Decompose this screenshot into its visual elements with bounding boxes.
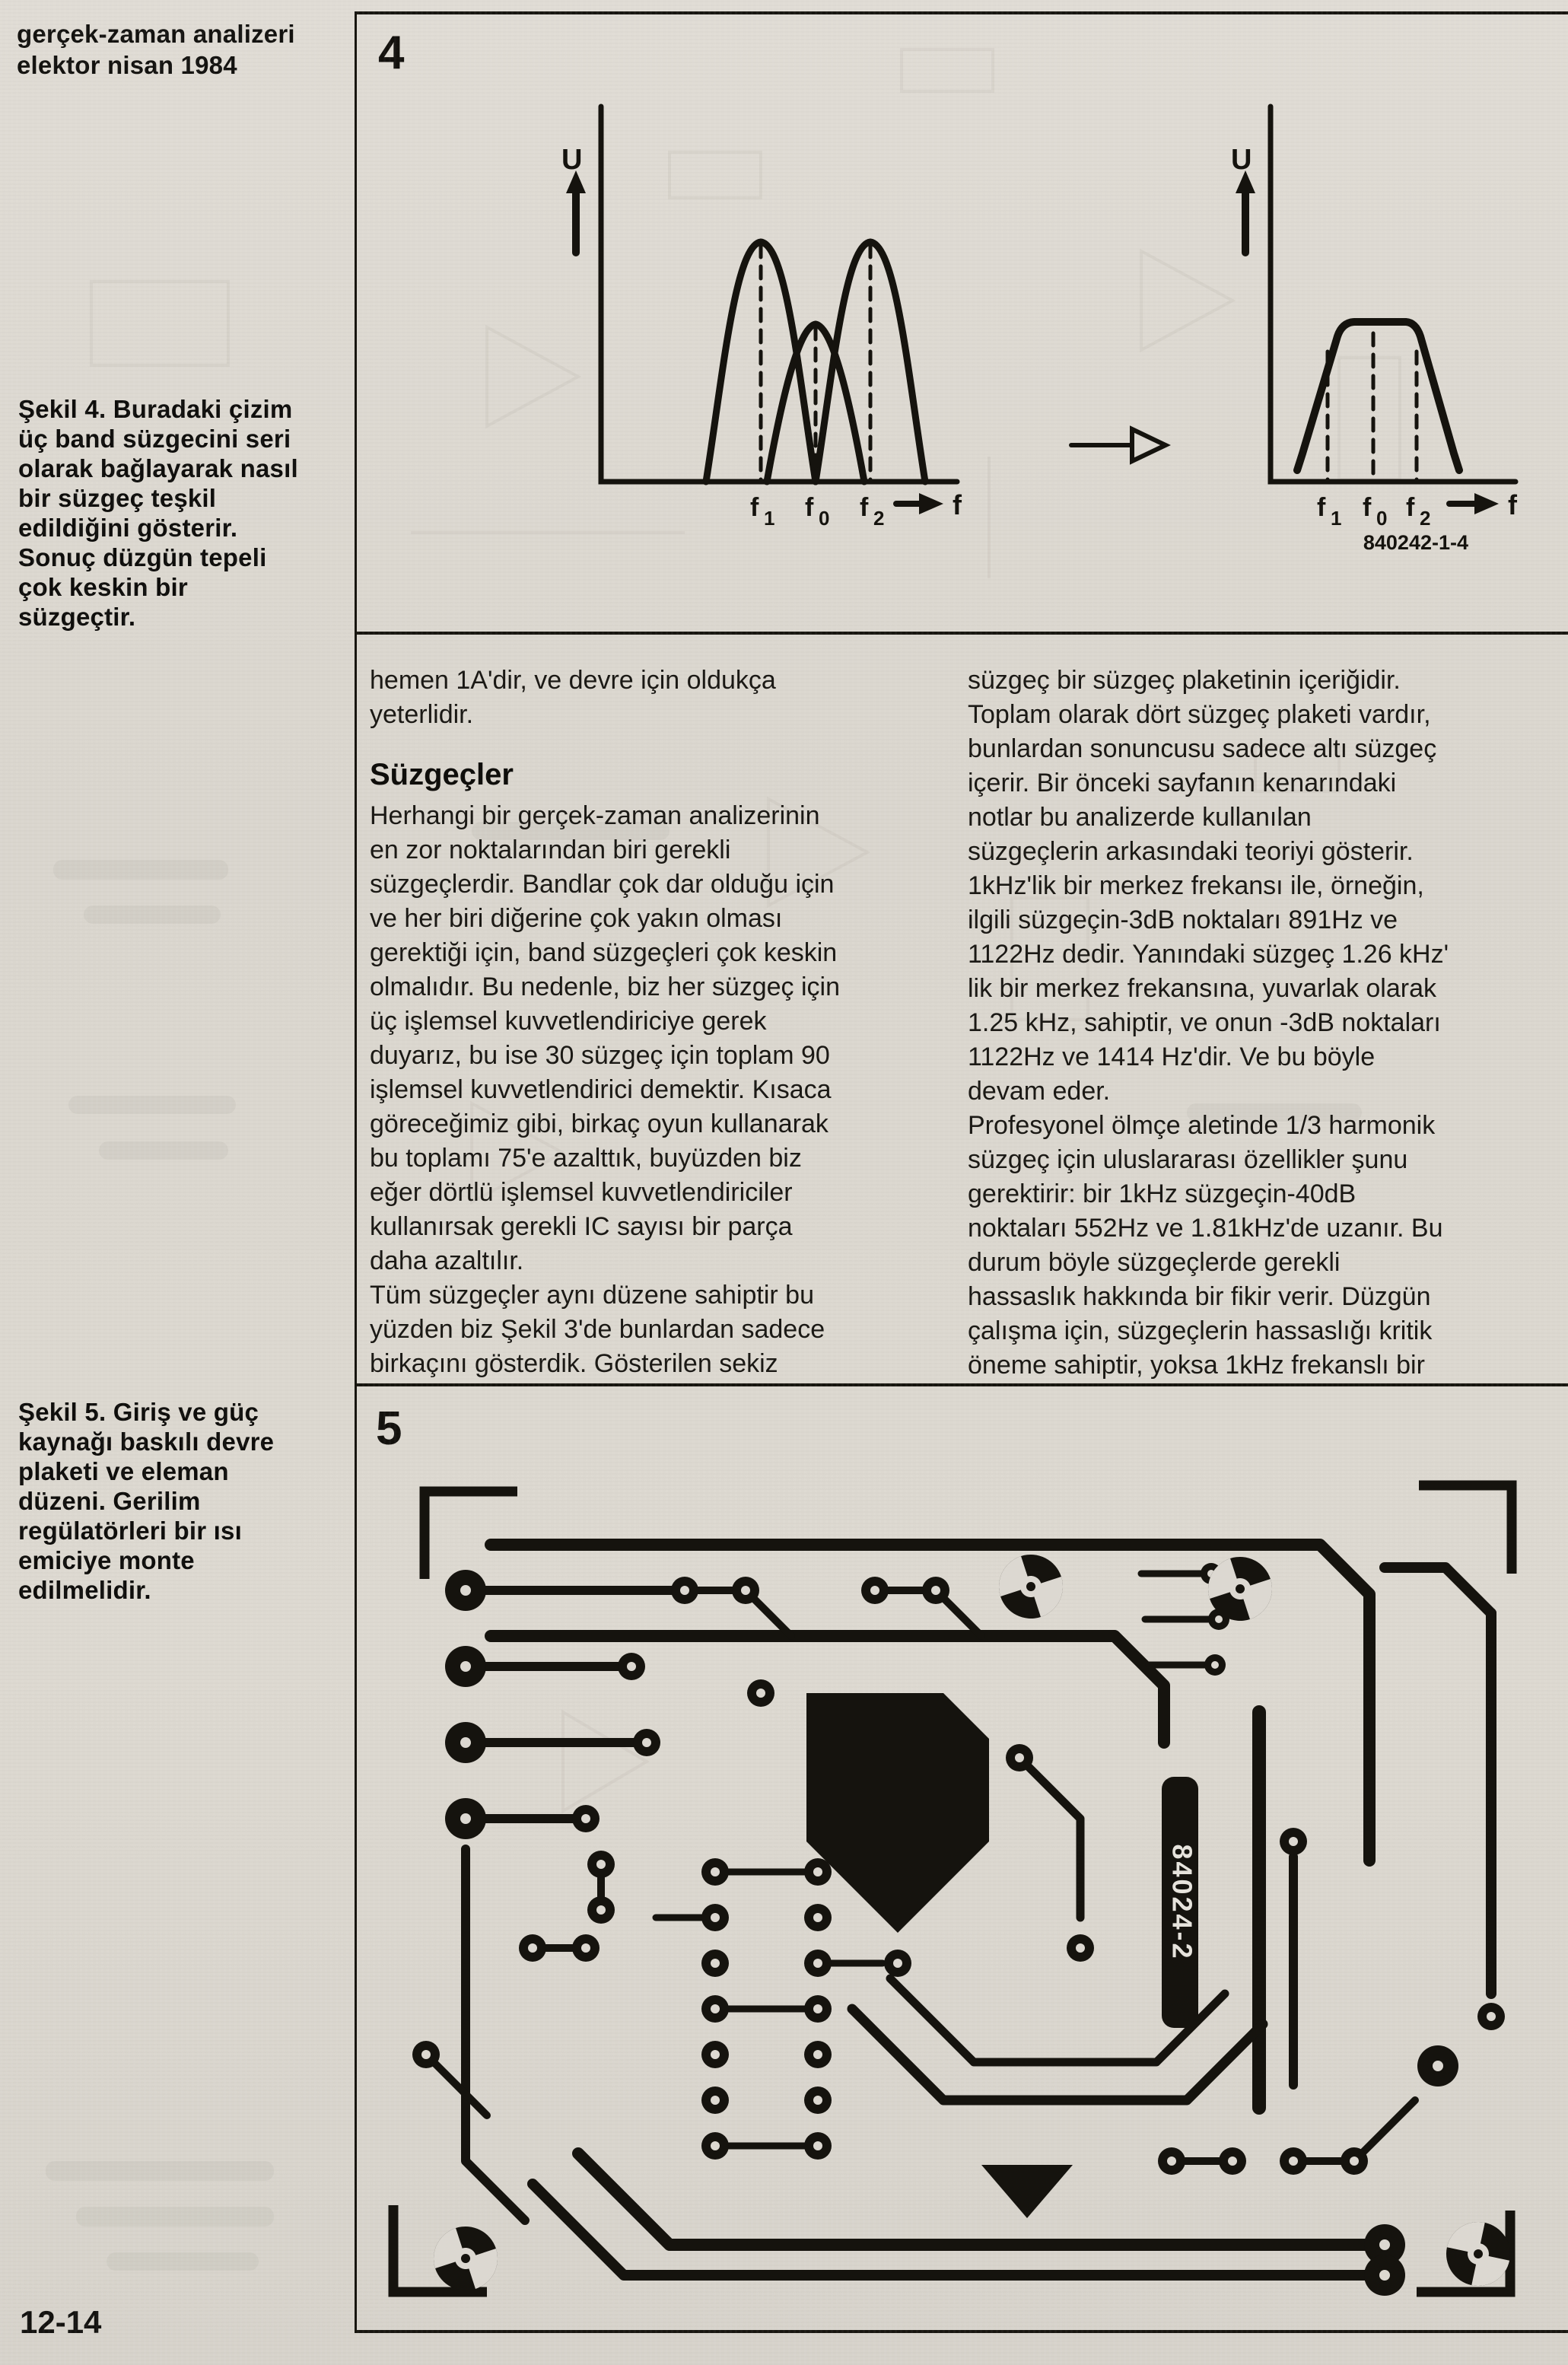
pcb-code-label: 84024-2	[1166, 1844, 1197, 1960]
body-paragraph: süzgeç bir süzgeç plaketinin içeriğidir.…	[968, 664, 1561, 1109]
fig4-left-axis-f-label: f	[953, 489, 962, 520]
page-header-line2: elektor nisan 1984	[17, 49, 295, 81]
page-number: 12-14	[20, 2304, 101, 2341]
page-header: gerçek-zaman analizeri elektor nisan 198…	[17, 18, 295, 81]
page-header-line1: gerçek-zaman analizeri	[17, 18, 295, 49]
fig4-tick-f1-sub: 1	[764, 507, 774, 530]
figure4-diagram: U U f f f 1 f 0 f 2 f 1 f 0 f 2 840242-1…	[355, 11, 1568, 632]
magazine-page: gerçek-zaman analizeri elektor nisan 198…	[0, 0, 1568, 2365]
figure4-caption: Şekil 4. Buradaki çizim üç band süzgecin…	[18, 394, 345, 632]
fig4-right-tick-f0: f	[1363, 493, 1372, 522]
fig4-right-tick-f1: f	[1317, 493, 1326, 522]
fig4-right-axis-f-label: f	[1508, 489, 1518, 520]
figure5-number: 5	[376, 1402, 402, 1456]
fig4-tick-f2-sub: 2	[873, 507, 884, 530]
figure5-caption: Şekil 5. Giriş ve güç kaynağı baskılı de…	[18, 1397, 345, 1605]
divider-rule-bottom	[355, 2330, 1568, 2333]
figure5-pcb-artwork: 84024-2	[384, 1465, 1548, 2317]
fig4-code-label: 840242-1-4	[1363, 531, 1468, 554]
body-paragraph: Herhangi bir gerçek-zaman analizerinin e…	[370, 799, 959, 1278]
registration-disc-icon	[425, 1546, 1516, 2299]
body-column-right: süzgeç bir süzgeç plaketinin içeriğidir.…	[968, 664, 1561, 1383]
body-paragraph: hemen 1A'dir, ve devre için oldukça yete…	[370, 664, 959, 732]
fig4-tick-f0: f	[805, 493, 814, 522]
divider-rule-fig5-top	[355, 1383, 1568, 1386]
fig4-right-tick-f2: f	[1406, 493, 1415, 522]
fig4-right-tick-f0-sub: 0	[1376, 507, 1387, 530]
fig4-right-tick-f1-sub: 1	[1331, 507, 1341, 530]
fig4-right-axis-u-label: U	[1231, 144, 1252, 176]
divider-rule-fig4-bottom	[355, 632, 1568, 635]
body-paragraph: Profesyonel ölmçe aletinde 1/3 harmonik …	[968, 1109, 1561, 1383]
fig4-right-tick-f2-sub: 2	[1420, 507, 1430, 530]
fig4-left-axis-u-label: U	[561, 144, 582, 176]
body-column-left: hemen 1A'dir, ve devre için oldukça yete…	[370, 664, 959, 1381]
fig4-tick-f0-sub: 0	[819, 507, 829, 530]
section-heading: Süzgeçler	[370, 758, 959, 792]
body-paragraph: Tüm süzgeçler aynı düzene sahiptir bu yü…	[370, 1278, 959, 1381]
fig4-tick-f1: f	[750, 493, 759, 522]
fig4-tick-f2: f	[860, 493, 869, 522]
